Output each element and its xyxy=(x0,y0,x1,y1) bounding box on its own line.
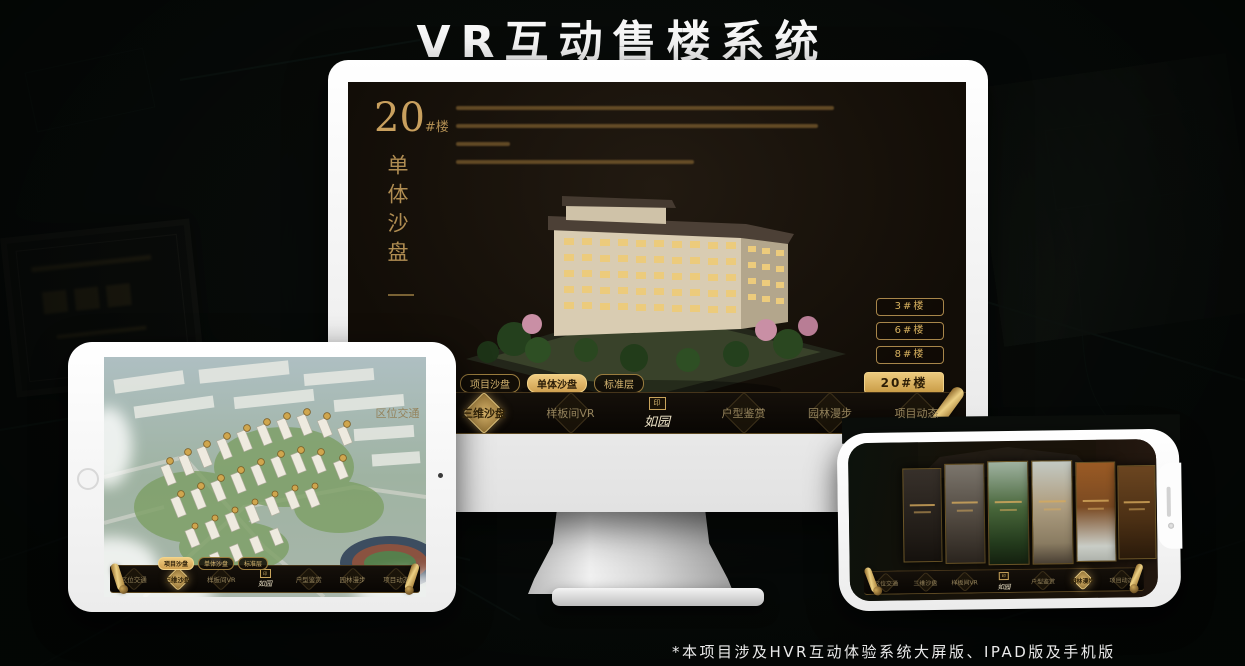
block-number-value: 20 xyxy=(374,95,425,141)
nav-item-model-room-vr[interactable]: 样板间VR xyxy=(201,574,241,584)
monitor-stand-base xyxy=(552,588,764,606)
nav-label: 样板间VR xyxy=(207,576,235,584)
subtab-project-sandbox[interactable]: 项目沙盘 xyxy=(158,557,194,570)
nav-label: 区位交通 xyxy=(121,576,147,584)
nav-logo: 印 如园 xyxy=(245,569,285,589)
phone-screen: 区位交通 三维沙盘 样板间VR 印 如园 xyxy=(848,439,1158,601)
nav-item-3d-sandbox[interactable]: 三维沙盘 xyxy=(447,405,521,421)
block-number: 20#楼 xyxy=(374,98,449,138)
nav-label: 园林漫步 xyxy=(1070,577,1094,584)
nav-label: 三维沙盘 xyxy=(165,576,191,584)
phone-notch xyxy=(1157,463,1182,549)
nav-item-floorplans[interactable]: 户型鉴赏 xyxy=(289,574,329,584)
nav-item-3d-sandbox[interactable]: 三维沙盘 xyxy=(158,574,198,584)
logo-text: 如园 xyxy=(644,411,670,430)
nav-item-3d-sandbox[interactable]: 三维沙盘 xyxy=(908,577,942,586)
phone-speaker xyxy=(1167,487,1171,517)
gallery-card-autumn[interactable] xyxy=(1075,462,1116,563)
nav-label: 三维沙盘 xyxy=(913,580,937,587)
floor-button-3[interactable]: 3#楼 xyxy=(876,298,944,316)
logo-seal-icon: 印 xyxy=(999,572,1009,580)
floor-button-8[interactable]: 8#楼 xyxy=(876,346,944,364)
block-subtitle: 单体沙盘 xyxy=(382,154,412,270)
logo-text: 如园 xyxy=(997,580,1010,590)
subtab-standard-floor[interactable]: 标准层 xyxy=(238,557,268,570)
gallery-card-kitchen[interactable] xyxy=(944,463,985,564)
nav-label: 三维沙盘 xyxy=(462,407,506,420)
description-line xyxy=(456,124,818,128)
tablet-subtabs: 项目沙盘 单体沙盘 标准层 xyxy=(158,557,268,570)
nav-item-model-room-vr[interactable]: 样板间VR xyxy=(948,577,982,586)
nav-label: 项目动态 xyxy=(895,407,939,420)
phone-camera-dot xyxy=(1168,523,1174,529)
monitor-subtabs: 项目沙盘 单体沙盘 标准层 xyxy=(460,374,644,393)
tablet-home-button[interactable] xyxy=(77,468,99,490)
nav-label: 样板间VR xyxy=(951,579,977,586)
footnote: *本项目涉及HVR互动体验系统大屏版、IPAD版及手机版 xyxy=(672,641,1116,662)
monitor-stand-neck xyxy=(528,510,734,594)
logo-seal-icon: 印 xyxy=(260,569,271,578)
gallery-card-interior[interactable] xyxy=(902,468,942,563)
subtab-project-sandbox[interactable]: 项目沙盘 xyxy=(460,374,520,393)
nav-label: 样板间VR xyxy=(546,407,594,420)
subtitle-rule xyxy=(388,294,414,296)
promo-canvas: VR互动售楼系统 20#楼 单体沙盘 xyxy=(0,0,1245,666)
tablet-device: 项目沙盘 单体沙盘 标准层 区位交通 三维沙盘 样板间VR xyxy=(68,342,456,612)
gallery-card-building[interactable] xyxy=(1031,460,1073,565)
phone-navbar: 区位交通 三维沙盘 样板间VR 印 如园 xyxy=(864,567,1144,595)
floor-button-20-active[interactable]: 20#楼 xyxy=(864,372,944,394)
subtab-standard-floor[interactable]: 标准层 xyxy=(594,374,644,393)
logo-text: 如园 xyxy=(258,579,272,589)
nav-item-floorplans[interactable]: 户型鉴赏 xyxy=(707,405,781,421)
nav-label: 园林漫步 xyxy=(808,407,852,420)
nav-item-garden-walk[interactable]: 园林漫步 xyxy=(333,574,373,584)
nav-item-model-room-vr[interactable]: 样板间VR xyxy=(534,405,608,421)
subtab-single-sandbox[interactable]: 单体沙盘 xyxy=(198,557,234,570)
gallery-card-cabinet[interactable] xyxy=(1117,465,1156,560)
description-line xyxy=(456,106,834,110)
subtab-single-sandbox[interactable]: 单体沙盘 xyxy=(527,374,587,393)
nav-logo: 印 如园 xyxy=(987,571,1021,590)
nav-logo: 印 如园 xyxy=(620,397,694,430)
nav-label: 户型鉴赏 xyxy=(296,576,322,584)
nav-item-garden-walk[interactable]: 园林漫步 xyxy=(1065,575,1099,584)
floor-button-6[interactable]: 6#楼 xyxy=(876,322,944,340)
nav-label: 户型鉴赏 xyxy=(722,407,766,420)
gallery-card-garden[interactable] xyxy=(987,461,1029,566)
nav-item-floorplans[interactable]: 户型鉴赏 xyxy=(1026,576,1060,585)
nav-label: 区位交通 xyxy=(376,407,420,420)
phone-device: 区位交通 三维沙盘 样板间VR 印 如园 xyxy=(837,429,1181,612)
tablet-screen: 项目沙盘 单体沙盘 标准层 区位交通 三维沙盘 样板间VR xyxy=(104,357,426,597)
description-line xyxy=(456,142,510,146)
block-unit: #楼 xyxy=(425,120,449,135)
tablet-camera-dot xyxy=(438,473,443,478)
nav-label: 园林漫步 xyxy=(340,576,366,584)
logo-seal-icon: 印 xyxy=(649,397,666,410)
nav-label: 户型鉴赏 xyxy=(1031,578,1055,585)
